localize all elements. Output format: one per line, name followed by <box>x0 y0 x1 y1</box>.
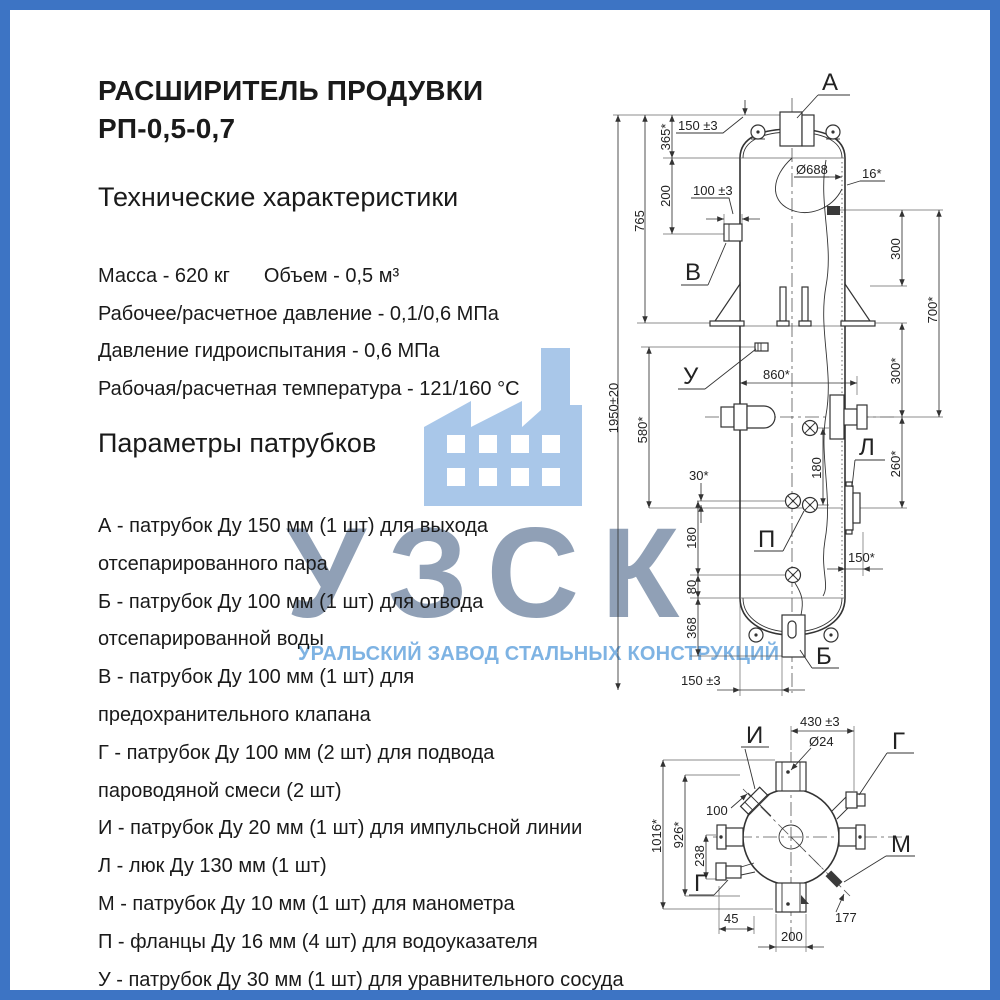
nozzle-list: А - патрубок Ду 150 мм (1 шт) для выхода… <box>98 508 618 999</box>
part-label-p: П <box>758 526 775 553</box>
page-title-line1: РАСШИРИТЕЛЬ ПРОДУВКИ <box>98 72 483 110</box>
dim-bottom-head: 368 <box>684 617 699 639</box>
front-view: 1950±20 765 365* 200 580* 150 ±3 100 ±3 … <box>606 69 943 696</box>
dim-nozzle-v: 100 ±3 <box>693 183 733 198</box>
part-label-g-left: Г <box>694 870 707 897</box>
dim-wall: 16* <box>862 166 882 181</box>
dim-right-total: 700* <box>925 297 940 324</box>
part-label-a: А <box>822 69 838 96</box>
manhole-l <box>845 482 860 534</box>
nozzle-desc-line: В - патрубок Ду 100 мм (1 шт) для <box>98 659 618 697</box>
nozzle-desc-line: отсепарированного пара <box>98 546 618 584</box>
dim-upper: 765 <box>632 210 647 232</box>
dim-mid: 580* <box>635 417 650 444</box>
specs-heading: Технические характеристики <box>98 182 458 212</box>
part-label-b: Б <box>816 643 832 670</box>
dim-right-upper: 300 <box>888 238 903 260</box>
dim-offset: 238 <box>692 845 707 867</box>
nozzle-v <box>724 224 742 241</box>
nozzle-u <box>755 343 768 351</box>
dim-inner-dia: Ø688 <box>796 162 828 177</box>
nozzle-g-front <box>721 404 775 430</box>
nozzle-desc-line: Л - люк Ду 130 мм (1 шт) <box>98 848 618 886</box>
dim-impulse: 100 <box>706 803 728 818</box>
part-label-m: М <box>891 831 911 858</box>
spec-mass: Масса - 620 кг <box>98 265 230 287</box>
dim-left: 45 <box>724 911 738 926</box>
spec-volume: Объем - 0,5 м³ <box>264 265 399 287</box>
nozzle-desc-line: М - патрубок Ду 10 мм (1 шт) для маномет… <box>98 886 618 924</box>
dim-width: 860* <box>763 367 790 382</box>
nozzle-desc-line: отсепарированной воды <box>98 621 618 659</box>
dim-bottom: 200 <box>781 929 803 944</box>
page-frame: УЗСК УРАЛЬСКИЙ ЗАВОД СТАЛЬНЫХ КОНСТРУКЦИ… <box>0 0 1000 1000</box>
spec-row-mass-volume: Масса - 620 кгОбъем - 0,5 м³ <box>98 258 618 296</box>
part-label-u: У <box>683 363 699 390</box>
dim-flange: 430 ±3 <box>800 714 840 729</box>
spec-row: Рабочее/расчетное давление - 0,1/0,6 МПа <box>98 296 618 334</box>
part-label-l: Л <box>859 434 875 461</box>
dim-right-mid: 300* <box>888 358 903 385</box>
dim-bottom-offset: 150 ±3 <box>681 673 721 688</box>
nozzle-m <box>826 871 843 888</box>
dim-manhole: 150* <box>848 550 875 565</box>
nozzle-desc-line: Г - патрубок Ду 100 мм (2 шт) для подвод… <box>98 735 618 773</box>
dim-body: 926* <box>671 822 686 849</box>
page-title: РАСШИРИТЕЛЬ ПРОДУВКИ РП-0,5-0,7 <box>98 72 483 148</box>
nozzle-desc-line: У - патрубок Ду 30 мм (1 шт) для уравнит… <box>98 962 618 1000</box>
nozzles-heading: Параметры патрубков <box>98 428 376 458</box>
dim-overall-top: 1016* <box>649 819 664 853</box>
dim-hole: Ø24 <box>809 734 834 749</box>
part-label-i: И <box>746 722 763 749</box>
dim-head: 365* <box>658 124 673 151</box>
nozzle-desc-line: П - фланцы Ду 16 мм (4 шт) для водоуказа… <box>98 924 618 962</box>
technical-drawing: 1950±20 765 365* 200 580* 150 ±3 100 ±3 … <box>605 38 1000 990</box>
nozzle-desc-line: А - патрубок Ду 150 мм (1 шт) для выхода <box>98 508 618 546</box>
nozzle-desc-line: предохранительного клапана <box>98 697 618 735</box>
nozzle-desc-line: пароводяной смеси (2 шт) <box>98 773 618 811</box>
dim-diagonal: 177 <box>835 910 857 925</box>
specs-list: Масса - 620 кгОбъем - 0,5 м³ Рабочее/рас… <box>98 258 618 408</box>
dim-gauge-right: 180 <box>809 457 824 479</box>
nozzle-desc-line: Б - патрубок Ду 100 мм (1 шт) для отвода <box>98 584 618 622</box>
gauge-flanges-p <box>786 421 818 583</box>
dim-gauge-offset: 30* <box>689 468 709 483</box>
nozzle-g-left <box>716 863 755 880</box>
part-label-v: В <box>685 259 701 286</box>
top-view: 430 ±3 Ø24 100 1016* 926* 238 45 200 177… <box>649 714 915 952</box>
page-title-line2: РП-0,5-0,7 <box>98 110 483 148</box>
dim-lower: 80 <box>684 580 699 594</box>
dim-overall-height: 1950±20 <box>606 383 621 434</box>
dim-nozzle-a: 150 ±3 <box>678 118 718 133</box>
nozzle-g-right <box>832 792 865 819</box>
spec-row: Давление гидроиспытания - 0,6 МПа <box>98 333 618 371</box>
spec-row: Рабочая/расчетная температура - 121/160 … <box>98 371 618 409</box>
dim-right-lower: 260* <box>888 451 903 478</box>
nozzle-desc-line: И - патрубок Ду 20 мм (1 шт) для импульс… <box>98 810 618 848</box>
dim-gauge-left: 180 <box>684 527 699 549</box>
part-label-g-right: Г <box>892 728 905 755</box>
nozzle-a <box>780 112 802 146</box>
dim-neck: 200 <box>658 185 673 207</box>
support-lugs <box>710 284 875 326</box>
